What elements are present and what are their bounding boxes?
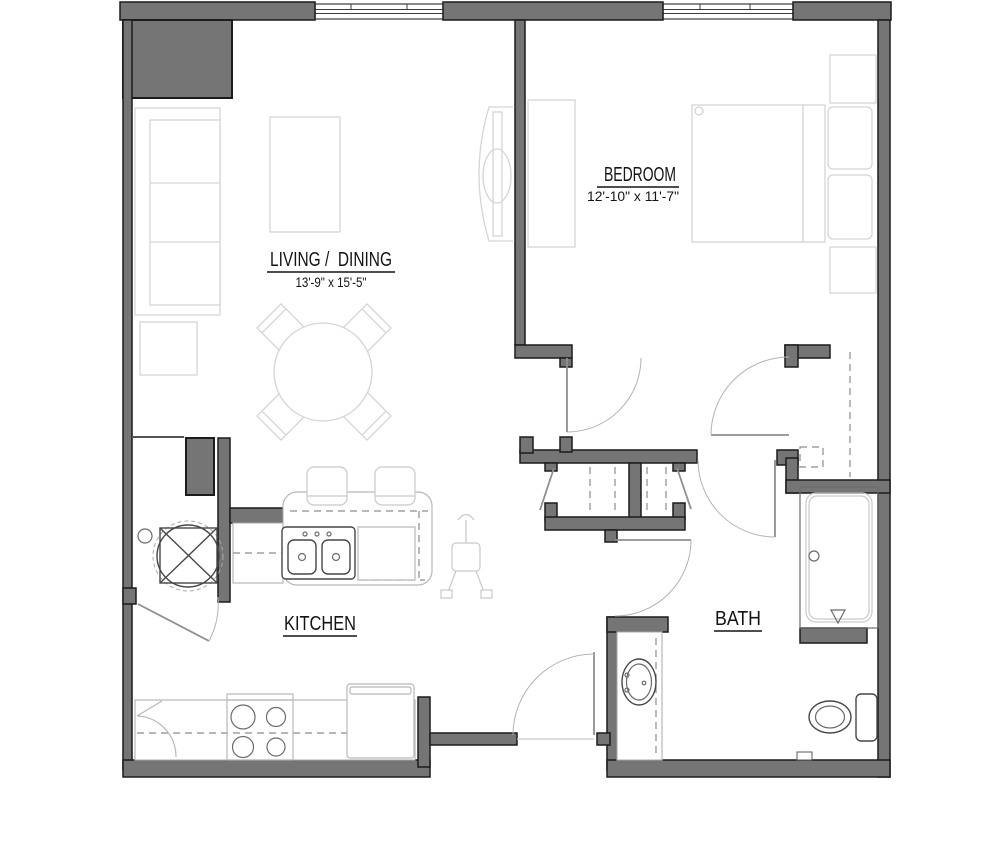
stacked-washer-dryer	[138, 521, 223, 591]
high-chair	[441, 515, 492, 599]
room-label-bedroom: BEDROOM 12'-10" x 11'-7"	[587, 164, 679, 204]
double-bed	[692, 105, 872, 242]
dishwasher	[358, 527, 415, 580]
toilet	[809, 694, 877, 741]
wall-partition-living-bedroom	[515, 20, 525, 345]
closet-shelf	[800, 447, 823, 467]
pillow	[828, 175, 872, 239]
wall-laundry-right	[218, 438, 230, 602]
sofa	[135, 108, 220, 315]
room-dimensions: 12'-10" x 11'-7"	[587, 188, 679, 204]
wall-closet-top	[520, 450, 697, 463]
duct-chase	[186, 438, 214, 495]
wall-entry-stub	[418, 697, 430, 767]
coffee-table	[270, 117, 340, 232]
chimney-block	[123, 20, 232, 98]
room-label-kitchen: KITCHEN	[283, 613, 357, 636]
wall-bath-left	[607, 617, 617, 770]
wall-bath-top	[607, 617, 668, 632]
nightstand	[830, 247, 876, 293]
shower	[800, 487, 878, 628]
room-label-bath: BATH	[714, 608, 762, 631]
hall-door	[615, 540, 691, 616]
laundry-closet-door	[138, 597, 218, 641]
room-title: BEDROOM	[604, 164, 676, 186]
wall-notch	[797, 752, 812, 760]
wall-shower-bottom	[800, 628, 867, 643]
room-title: LIVING / DINING	[270, 249, 392, 271]
bar-stool	[375, 467, 415, 505]
wall-kitchen-bottom	[123, 760, 430, 777]
floor-drain	[138, 529, 152, 543]
bath-door	[698, 460, 775, 537]
room-dimensions: 13'-9" x 15'-5"	[296, 274, 367, 290]
entry-door	[513, 652, 594, 739]
wall-top-middle	[443, 2, 663, 20]
tv-console	[479, 107, 513, 241]
wall-stub	[785, 345, 798, 367]
bedroom-closet	[800, 352, 850, 477]
floor-plan: LIVING / DINING 13'-9" x 15'-5" BEDROOM …	[0, 0, 999, 844]
shower-control	[809, 551, 819, 561]
nightstand	[830, 55, 876, 103]
wall-top-left	[120, 2, 315, 20]
wall-entry-stub	[597, 733, 610, 745]
wall-counter-stub	[230, 508, 283, 523]
wall-stub	[560, 358, 572, 367]
room-title: BATH	[715, 608, 761, 630]
vanity-sink	[617, 632, 662, 760]
room-label-living-dining: LIVING / DINING 13'-9" x 15'-5"	[267, 249, 395, 290]
wall-closet-right	[673, 463, 685, 471]
wall-stub	[520, 437, 533, 453]
bedroom-door-left	[567, 358, 641, 432]
wall-top-right	[793, 2, 891, 20]
wall-bath-bottom	[607, 760, 890, 777]
end-table	[140, 322, 197, 375]
pillow	[828, 107, 872, 169]
wall-entry	[430, 733, 517, 745]
window	[315, 4, 443, 19]
double-basin-sink	[282, 527, 355, 579]
door-jamb	[123, 588, 136, 604]
wall-stub	[560, 437, 572, 452]
round-dining-table	[274, 323, 372, 421]
window	[663, 4, 793, 19]
floor-plan-drawing: LIVING / DINING 13'-9" x 15'-5" BEDROOM …	[0, 0, 999, 844]
wall-bedroom-south-left	[515, 345, 572, 358]
wall-right	[878, 20, 890, 777]
wall-closet-divider	[629, 463, 641, 520]
toilet-tank	[856, 694, 877, 741]
dresser	[528, 100, 575, 247]
bedroom-door-right	[711, 357, 789, 435]
wall-closet-bottom	[545, 517, 685, 530]
room-title: KITCHEN	[284, 613, 356, 635]
shower-drain	[831, 610, 845, 623]
bar-stool	[307, 467, 347, 505]
refrigerator	[347, 684, 414, 758]
hall-closets	[540, 467, 691, 514]
wall-closet-left	[545, 463, 557, 471]
wall-left	[123, 20, 132, 770]
